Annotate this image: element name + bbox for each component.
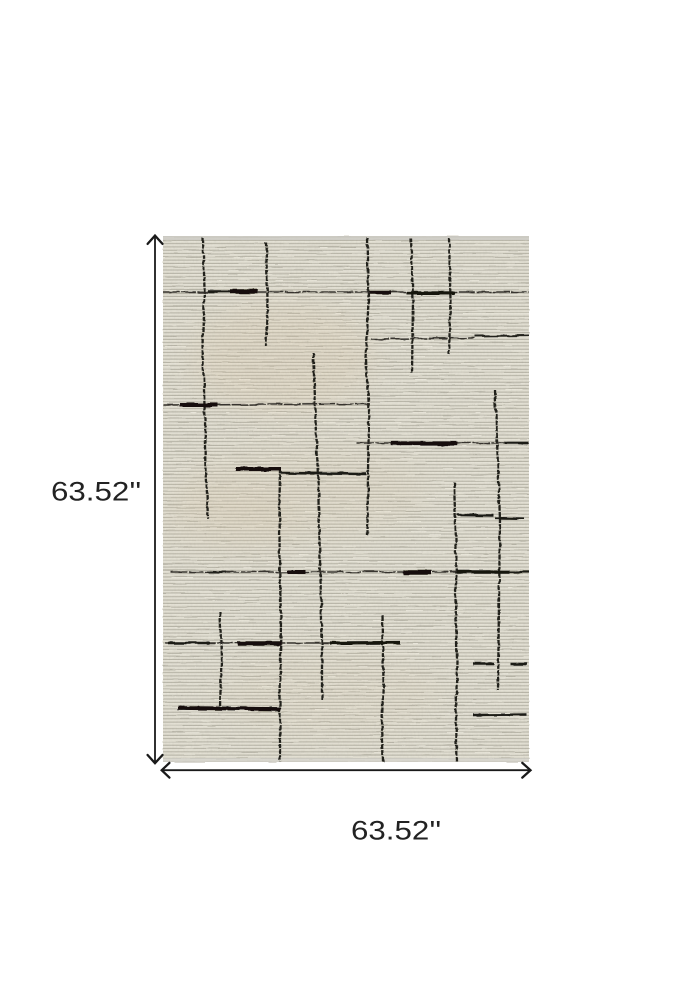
svg-text:63.52'': 63.52''	[51, 477, 141, 507]
svg-text:63.52'': 63.52''	[351, 817, 441, 847]
